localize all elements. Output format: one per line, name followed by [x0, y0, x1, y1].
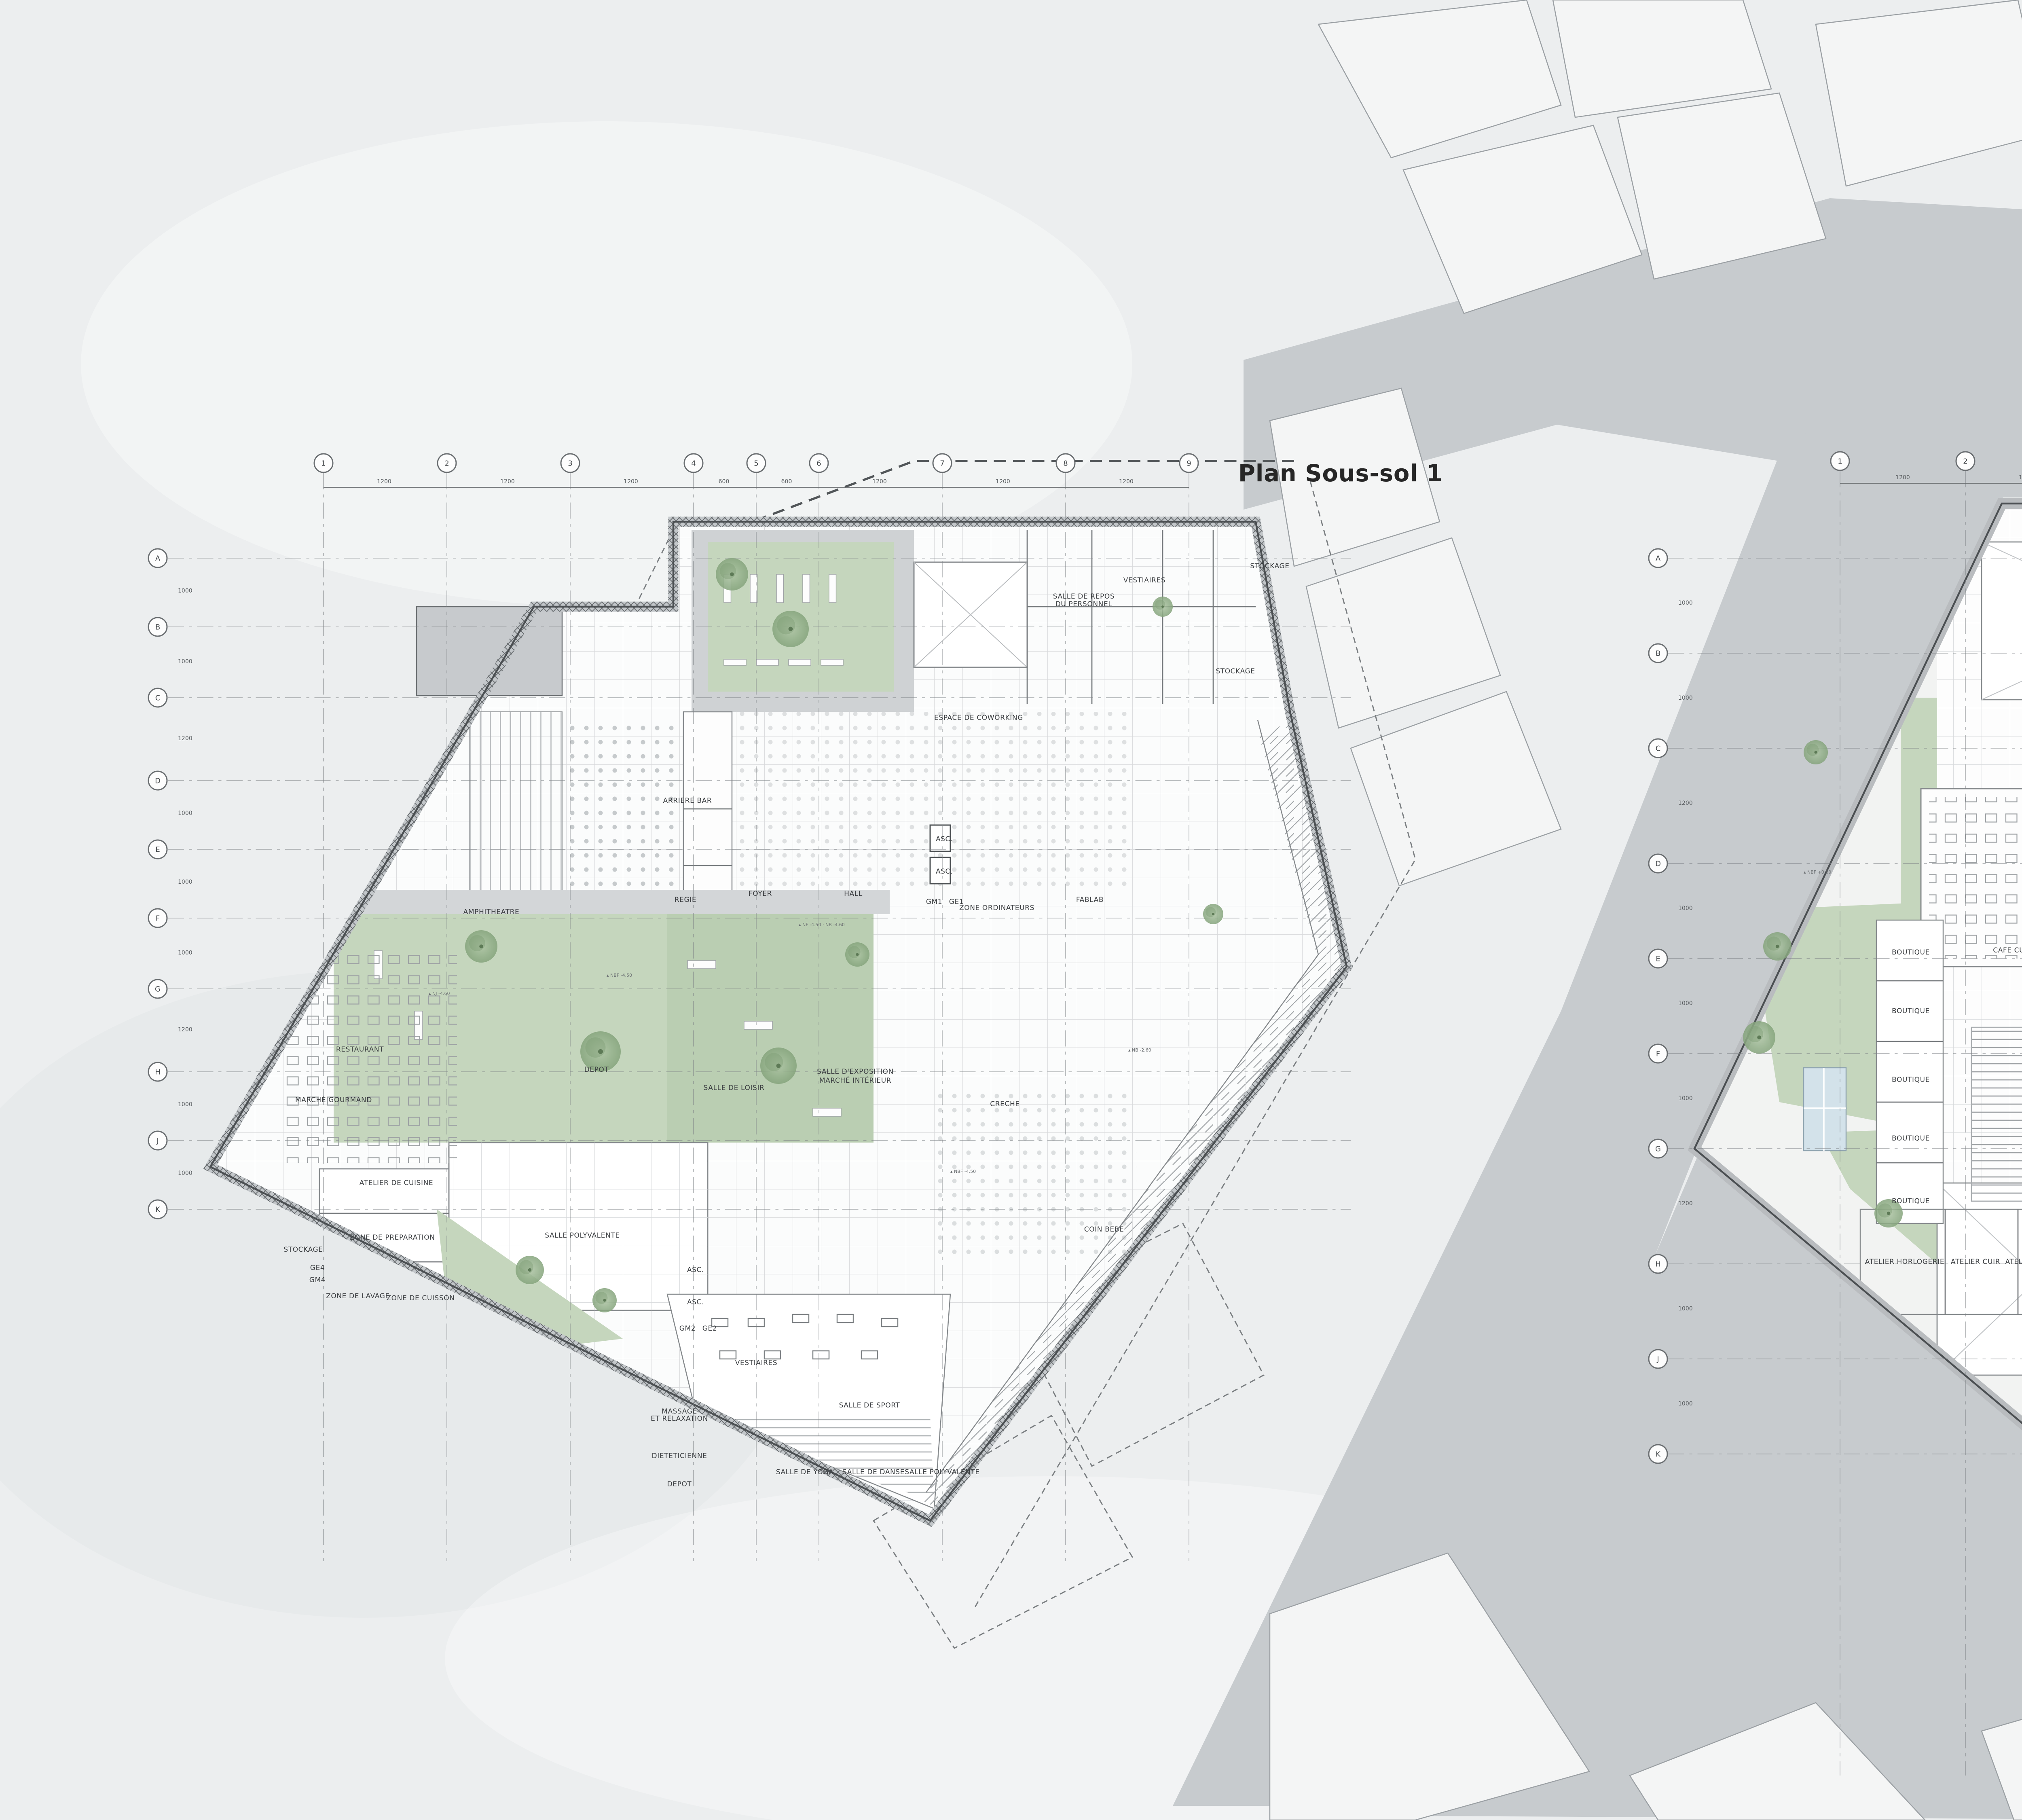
dimension-label: 600 — [719, 478, 730, 485]
room-label: BOUTIQUE — [1892, 1134, 1930, 1143]
room-label: REGIE — [675, 896, 696, 904]
dimension-label: 1000 — [1678, 1095, 1693, 1102]
room-label: BOUTIQUE — [1892, 1197, 1930, 1205]
grid-bubble-label: 2 — [444, 459, 449, 468]
grid-bubble-label: G — [155, 985, 161, 994]
room-label: SALLE POLYVALENTE — [905, 1468, 979, 1476]
grid-bubble-label: F — [1656, 1050, 1660, 1058]
room-label: BOUTIQUE — [1892, 948, 1930, 957]
grid-bubble-label: A — [155, 554, 161, 563]
grid-bubble-label: C — [155, 694, 161, 703]
room-label: ASC. — [936, 868, 953, 876]
room-label: ATELIER HORLOGERIE — [1865, 1258, 1944, 1266]
grid-bubble-label: D — [1655, 860, 1661, 868]
dimension-label: 1000 — [1678, 1401, 1693, 1407]
tree — [465, 930, 497, 963]
grid-bubble-label: B — [1656, 650, 1660, 658]
grid-bubble-label: D — [155, 777, 161, 785]
room-label: AMPHITHEATRE — [463, 908, 520, 916]
dimension-label: 1000 — [178, 810, 192, 817]
tree — [1153, 597, 1173, 617]
tree — [1804, 740, 1828, 764]
room-label: VESTIAIRES — [735, 1359, 778, 1367]
grid-bubble-label: 6 — [816, 459, 821, 468]
dimension-label: 1200 — [624, 478, 638, 485]
room-label: DEPOT — [667, 1480, 692, 1488]
room-label: STOCKAGE — [1250, 562, 1289, 570]
dimension-label: 1200 — [872, 478, 887, 485]
room-label: MARCHÉ GOURMAND — [295, 1095, 372, 1104]
grid-bubble-label: J — [1656, 1355, 1659, 1364]
room-label: GE2 — [702, 1325, 717, 1333]
grid-bubble-label: C — [1656, 745, 1661, 753]
dimension-label: 1200 — [377, 478, 391, 485]
dimension-label: 1000 — [178, 879, 192, 885]
tree — [1763, 932, 1791, 961]
grid-bubble-label: E — [1656, 955, 1660, 963]
room-label: STOCKAGE — [1216, 667, 1255, 675]
grid-bubble-label: B — [155, 623, 160, 632]
grid-bubble-label: K — [155, 1206, 161, 1214]
room-label: GE4 — [310, 1264, 325, 1272]
room-label: ASC. — [936, 835, 953, 843]
grid-bubble-label: G — [1655, 1145, 1661, 1153]
tree — [845, 942, 869, 967]
grid-bubble-label: 1 — [1838, 457, 1842, 466]
dimension-label: 1000 — [1678, 600, 1693, 606]
level-marker: ▴ NF -4.50 · NB -4.60 — [799, 922, 845, 927]
drawing-sheet: 123456789120012001200600600120012001200A… — [0, 0, 2022, 1820]
room-label: CAFE CULTUREL — [1993, 946, 2022, 954]
dimension-label: 1000 — [1678, 905, 1693, 912]
room-label: ATELIER TAILLEUR — [2005, 1258, 2022, 1266]
room-label: COIN BEBE — [1084, 1225, 1124, 1234]
room-label: DEPOT — [584, 1066, 609, 1074]
dimension-label: 600 — [781, 478, 792, 485]
room-label: GM4 — [309, 1276, 326, 1284]
room-label: ZONE ORDINATEURS — [959, 904, 1034, 912]
dimension-label: 1000 — [1678, 1000, 1693, 1007]
level-marker: ▴ NBF -4.50 — [950, 1169, 976, 1174]
dimension-label: 1000 — [178, 588, 192, 594]
room-label: SALLE POLYVALENTE — [545, 1232, 620, 1240]
room-label: ATELIER DE CUISINE — [360, 1179, 434, 1187]
dimension-label: 1200 — [1678, 800, 1693, 806]
grid-bubble-label: A — [1656, 554, 1661, 563]
dimension-label: 1200 — [1119, 478, 1134, 485]
dimension-label: 1000 — [178, 1170, 192, 1177]
grid-bubble-label: 8 — [1063, 459, 1068, 468]
dimension-label: 1000 — [1678, 1306, 1693, 1312]
room-label: FABLAB — [1076, 896, 1104, 904]
grid-bubble-label: 9 — [1187, 459, 1191, 468]
grid-bubble-label: 2 — [1963, 457, 1967, 466]
dimension-label: 1200 — [500, 478, 515, 485]
level-marker: ▴ NBF +0.00 — [1804, 870, 1831, 875]
room-label: ZONE DE PREPARATION — [349, 1234, 435, 1242]
dimension-label: 1200 — [178, 735, 192, 742]
level-marker: ▴ NBF -4.50 — [607, 973, 632, 978]
grid-bubble-label: 1 — [321, 459, 326, 468]
dimension-label: 1000 — [178, 658, 192, 665]
room-label: SALLE DE SPORT — [839, 1401, 900, 1409]
level-marker: ▴ NJ -4.60 — [429, 991, 450, 996]
tree — [1743, 1021, 1775, 1054]
grid-bubble-label: 3 — [568, 459, 572, 468]
room-label: CRECHE — [990, 1100, 1019, 1108]
dimension-label: 1200 — [1895, 474, 1910, 481]
room-label: SALLE DE YOGA — [776, 1468, 834, 1476]
grid-bubble-label: F — [156, 914, 160, 923]
grid-bubble-label: E — [155, 846, 160, 854]
room-label: DIETETICIENNE — [652, 1452, 707, 1460]
room-label: RESTAURANT — [336, 1045, 384, 1054]
room-label: ARRIERE BAR — [663, 797, 712, 805]
boutiques-strip — [1876, 920, 1943, 1223]
room-label: ASC. — [687, 1266, 704, 1274]
dimension-label: 1000 — [1678, 695, 1693, 701]
room-label: ESPACE DE COWORKING — [934, 714, 1023, 722]
grid-bubble-label: 5 — [754, 459, 758, 468]
dimension-label: 1200 — [1678, 1200, 1693, 1207]
room-label: SALLE DE DANSE — [842, 1468, 905, 1476]
dimension-label: 1000 — [178, 1101, 192, 1108]
tree — [1203, 904, 1223, 924]
tree — [516, 1256, 544, 1284]
room-label: STOCKAGE — [283, 1246, 323, 1254]
room-label: GM1 — [926, 898, 942, 906]
room-label: SALLE DE REPOSDU PERSONNEL — [1053, 593, 1115, 608]
room-label: ZONE DE LAVAGE — [326, 1292, 390, 1300]
grid-bubble-label: 7 — [940, 459, 944, 468]
tree — [592, 1288, 617, 1312]
grid-bubble-label: 4 — [691, 459, 696, 468]
room-label: SALLE DE LOISIR — [704, 1084, 765, 1092]
dimension-label: 1200 — [2019, 474, 2022, 481]
left-plan-title: Plan Sous-sol 1 — [1238, 460, 1443, 487]
dimension-label: 1200 — [996, 478, 1010, 485]
grid-bubble-label: K — [1656, 1450, 1661, 1459]
room-label: BOUTIQUE — [1892, 1007, 1930, 1015]
room-label: HALL — [844, 890, 863, 898]
room-label: BOUTIQUE — [1892, 1076, 1930, 1084]
room-label: ATELIER CUIR — [1951, 1258, 2000, 1266]
dimension-label: 1000 — [178, 950, 192, 956]
room-label: FOYER — [749, 890, 772, 898]
grid-bubble-label: J — [156, 1137, 159, 1145]
grid-bubble-label: H — [155, 1068, 161, 1077]
grid-bubble-label: H — [1655, 1260, 1661, 1269]
walkway — [324, 890, 890, 914]
dimension-label: 1200 — [178, 1026, 192, 1033]
tree — [772, 611, 809, 647]
room-label: SALLE D'EXPOSITIONMARCHÉ INTÉRIEUR — [817, 1068, 894, 1085]
room-label: ASC. — [687, 1298, 704, 1306]
tree — [716, 558, 748, 590]
level-marker: ▴ NB -2.60 — [1128, 1048, 1151, 1053]
tree — [760, 1048, 797, 1084]
room-label: ZONE DE CUISSON — [386, 1294, 455, 1302]
room-label: VESTIAIRES — [1123, 576, 1166, 584]
room-label: GM2 — [679, 1325, 696, 1333]
